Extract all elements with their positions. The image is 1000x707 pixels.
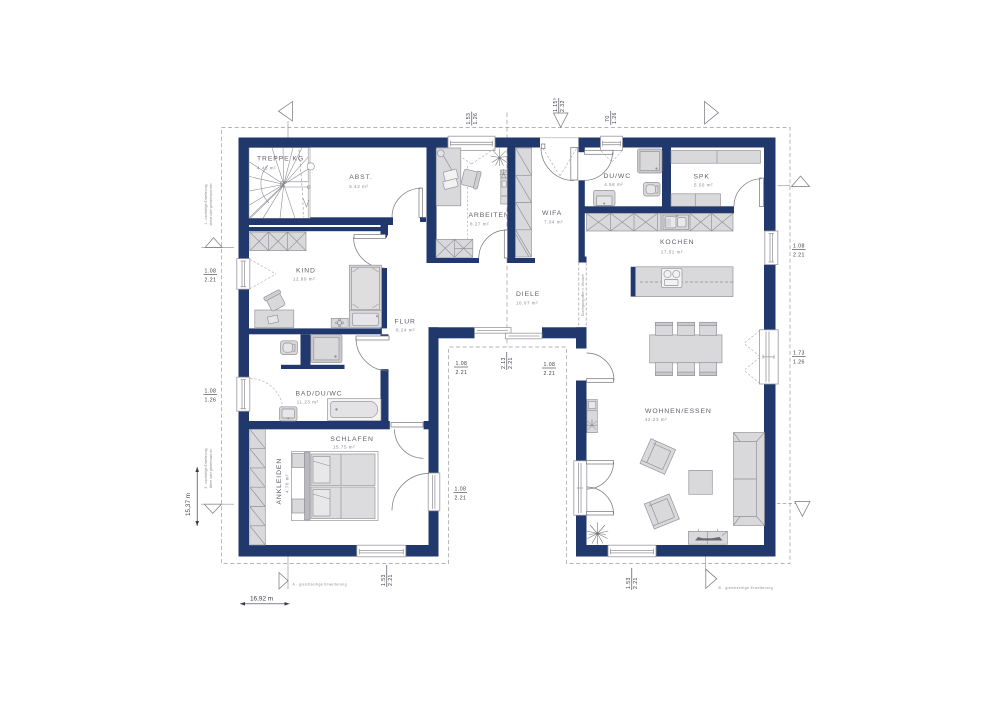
svg-text:12.89 m²: 12.89 m² — [293, 277, 315, 282]
svg-text:10.07 m²: 10.07 m² — [516, 301, 538, 306]
svg-text:DU/WC: DU/WC — [604, 173, 632, 180]
svg-text:7.04 m²: 7.04 m² — [544, 219, 563, 224]
svg-text:2.21: 2.21 — [205, 278, 217, 284]
svg-text:2.21: 2.21 — [456, 370, 468, 376]
svg-text:2.32: 2.32 — [560, 100, 566, 112]
svg-text:WOHNEN/ESSEN: WOHNEN/ESSEN — [645, 408, 712, 415]
svg-text:1.53: 1.53 — [381, 574, 387, 586]
svg-text:1.08: 1.08 — [455, 487, 467, 493]
svg-text:4.58 m²: 4.58 m² — [604, 182, 623, 187]
svg-text:SPK: SPK — [694, 174, 710, 181]
svg-text:42.23 m²: 42.23 m² — [645, 417, 667, 422]
svg-text:70: 70 — [605, 115, 611, 122]
svg-text:KIND: KIND — [296, 267, 316, 274]
svg-text:8.27 m²: 8.27 m² — [470, 222, 489, 227]
svg-text:SCHLAFEN: SCHLAFEN — [330, 436, 373, 443]
svg-text:1.26: 1.26 — [473, 113, 479, 125]
svg-text:1 - nachteilige Erweiterung: 1 - nachteilige Erweiterung — [204, 184, 208, 224]
svg-text:2.21: 2.21 — [633, 577, 639, 589]
svg-text:15,37 m: 15,37 m — [185, 493, 192, 516]
svg-text:BAD/DU/WC: BAD/DU/WC — [296, 391, 343, 398]
svg-text:4.48 m²: 4.48 m² — [257, 166, 276, 171]
svg-text:FLUR: FLUR — [395, 319, 416, 326]
svg-text:kleine oder gemeinsam m²b: kleine oder gemeinsam m²b — [209, 183, 213, 225]
svg-text:DIELE: DIELE — [516, 291, 540, 298]
svg-text:1.08: 1.08 — [205, 389, 217, 395]
svg-text:1.26: 1.26 — [612, 112, 618, 124]
svg-text:2.21: 2.21 — [455, 496, 467, 502]
svg-text:4.76 m²: 4.76 m² — [285, 474, 290, 493]
svg-text:1.26: 1.26 — [793, 360, 805, 366]
svg-text:16,92 m: 16,92 m — [250, 596, 273, 603]
svg-text:Durchgang offen n. Wunsch: Durchgang offen n. Wunsch — [581, 274, 585, 316]
svg-text:2.21: 2.21 — [793, 253, 805, 259]
svg-text:2.21: 2.21 — [544, 371, 556, 377]
svg-text:15.75 m²: 15.75 m² — [333, 444, 355, 449]
svg-text:3 - nachteilige Erweiterung: 3 - nachteilige Erweiterung — [204, 448, 208, 488]
svg-text:5.42 m²: 5.42 m² — [349, 184, 368, 189]
svg-text:ANKLEIDEN: ANKLEIDEN — [276, 458, 283, 505]
svg-text:1.73: 1.73 — [793, 351, 805, 357]
svg-text:1.53: 1.53 — [626, 577, 632, 589]
svg-text:1.08: 1.08 — [456, 361, 468, 367]
svg-text:2.13: 2.13 — [501, 357, 507, 369]
svg-text:11.23 m²: 11.23 m² — [297, 399, 319, 404]
svg-text:B - gleichseitige Erweiterung: B - gleichseitige Erweiterung — [719, 586, 774, 590]
svg-text:KOCHEN: KOCHEN — [660, 239, 694, 246]
svg-text:8.24 m²: 8.24 m² — [396, 327, 415, 332]
svg-text:ABST.: ABST. — [349, 174, 372, 181]
svg-text:5.50 m²: 5.50 m² — [694, 182, 713, 187]
svg-text:TREPPE KG: TREPPE KG — [257, 156, 304, 163]
svg-text:1.53: 1.53 — [466, 113, 472, 125]
svg-text:1.08: 1.08 — [793, 244, 805, 250]
svg-text:WIFA: WIFA — [542, 210, 562, 217]
svg-text:ältere oder gemeinsam m²: ältere oder gemeinsam m² — [209, 448, 213, 488]
svg-text:1.08: 1.08 — [205, 269, 217, 275]
svg-text:A - gleichseitige Erweiterung: A - gleichseitige Erweiterung — [293, 583, 347, 587]
svg-text:ARBEITEN: ARBEITEN — [469, 212, 510, 219]
svg-text:1.15⁵: 1.15⁵ — [553, 98, 559, 113]
svg-text:1.26: 1.26 — [205, 398, 217, 404]
svg-text:1.08: 1.08 — [544, 362, 556, 368]
svg-text:2.21: 2.21 — [508, 357, 514, 369]
svg-text:2.21: 2.21 — [388, 574, 394, 586]
svg-text:17.51 m²: 17.51 m² — [661, 250, 683, 255]
